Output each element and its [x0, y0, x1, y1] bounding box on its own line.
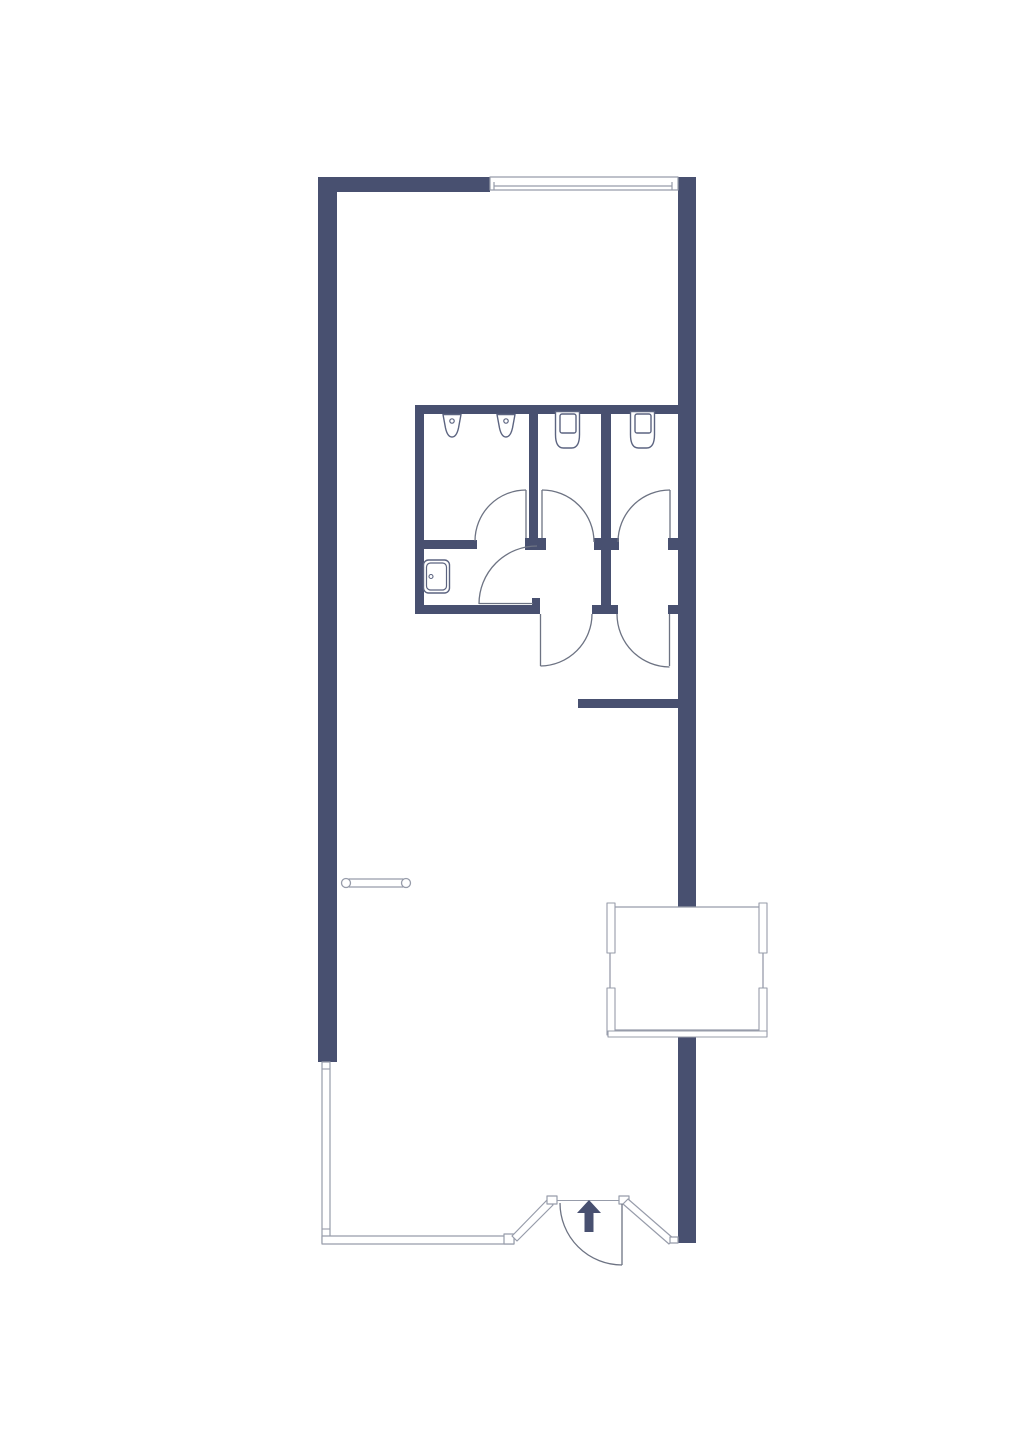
glass-wall-angled-right [623, 1199, 674, 1244]
floor-plan-canvas [0, 0, 1014, 1440]
stall-divider-b-base [592, 605, 618, 614]
stall-divider-a-stub [525, 538, 546, 550]
corridor-wall-stub [578, 699, 678, 708]
desk-edge-left-bottom [607, 988, 615, 1035]
stall-divider-b-stub [594, 538, 619, 550]
exterior-wall-left [318, 177, 337, 1062]
stall-1-inner-door-arc [542, 490, 594, 542]
floor-plan [0, 0, 1014, 1440]
glass-wall-bottom [322, 1236, 514, 1244]
right-wall-end-notch [670, 1237, 678, 1243]
bathroom-wall-bottom [415, 605, 540, 614]
radiator-end-left [342, 879, 351, 888]
desk-edge-left-top [607, 903, 615, 953]
toilet-2-tank [635, 414, 651, 433]
stall-2-door-arc [617, 614, 670, 667]
sink-faucet [429, 575, 433, 579]
desk-edge-right-bottom [759, 988, 767, 1035]
stall-divider-a [529, 405, 538, 550]
exterior-wall-right [678, 177, 696, 1243]
urinal-2 [497, 415, 515, 438]
right-wall-stub-mid [668, 538, 678, 550]
glass-wall-left [322, 1062, 330, 1243]
exterior-wall-top [318, 177, 490, 192]
bathroom-wall-mid [415, 540, 477, 549]
desk-edge-right-top [759, 903, 767, 953]
bathroom-wall-bottom-notch [532, 598, 540, 606]
stall-1-door-arc [541, 614, 593, 666]
bathroom-wall-left [415, 405, 424, 614]
urinal-1 [443, 415, 461, 438]
entry-post-left [547, 1196, 557, 1204]
desk [610, 907, 763, 1030]
desk-edge-bottom [608, 1031, 767, 1037]
urinal-room-door-arc [475, 490, 526, 541]
entry-direction-arrow [577, 1200, 601, 1232]
toilet-1-tank [560, 414, 576, 433]
glass-wall-angled-left [512, 1199, 553, 1241]
urinal-1-drain [450, 419, 454, 423]
radiator-bar [349, 879, 403, 887]
urinal-2-drain [504, 419, 508, 423]
stall-divider-b [601, 405, 611, 614]
window-top [490, 177, 678, 190]
sink-room-door-arc [479, 546, 537, 604]
right-wall-stub-bottom [668, 605, 678, 614]
stall-2-inner-door-arc [618, 490, 670, 542]
radiator-end-right [402, 879, 411, 888]
